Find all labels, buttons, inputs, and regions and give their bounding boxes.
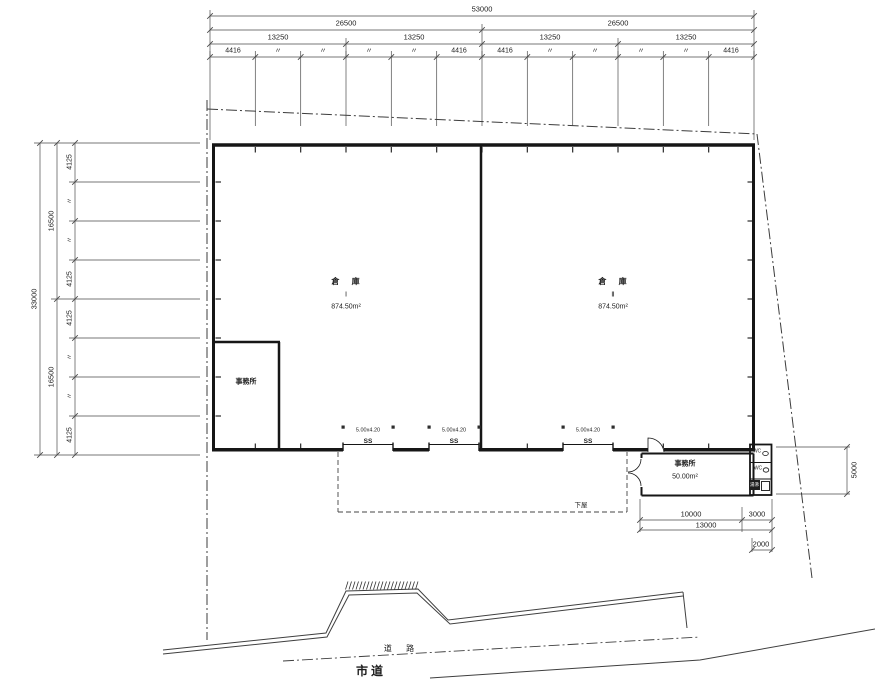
dim-left-cell: 4125 bbox=[67, 310, 74, 326]
floor-plan-sheet: 53000 26500 26500 13250 13250 13250 1325… bbox=[0, 0, 875, 686]
dim-left-cell: 〃 bbox=[67, 237, 74, 244]
dim-total-width: 13000 bbox=[696, 521, 717, 529]
dim-left-cell: 4125 bbox=[67, 271, 74, 287]
shutter-mark: SS bbox=[364, 438, 373, 445]
office-right-label: 事務所 bbox=[675, 461, 696, 468]
office-left-label: 事務所 bbox=[236, 379, 257, 386]
dim-top-total: 53000 bbox=[472, 5, 493, 13]
road-label: 道 路 bbox=[384, 645, 420, 653]
dim-wc-width: 2000 bbox=[753, 540, 770, 548]
building-walls bbox=[212, 144, 772, 496]
dim-top-cell: 〃 bbox=[683, 48, 690, 55]
dim-top-cell: 〃 bbox=[366, 48, 373, 55]
wc-lower-label: WC bbox=[754, 467, 762, 472]
dim-top-quarter: 13250 bbox=[676, 33, 697, 41]
warehouse-right-area: 874.50m² bbox=[598, 304, 628, 311]
road-lines bbox=[163, 589, 875, 678]
dim-top-cell: 〃 bbox=[638, 48, 645, 55]
dim-top-quarter: 13250 bbox=[404, 33, 425, 41]
shutter-mark: SS bbox=[584, 438, 593, 445]
warehouse-left-number: Ⅰ bbox=[345, 292, 347, 299]
warehouse-left-area: 874.50m² bbox=[331, 304, 361, 311]
shutter-mark: SS bbox=[450, 438, 459, 445]
warehouse-right-name: 倉 庫 bbox=[598, 278, 631, 286]
warehouse-left-name: 倉 庫 bbox=[331, 278, 364, 286]
dim-left-half-b: 16500 bbox=[47, 367, 55, 388]
shutter-size: 5.00x4.20 bbox=[576, 428, 600, 434]
dim-top-cell: 〃 bbox=[592, 48, 599, 55]
wc-upper-label: WC bbox=[753, 450, 761, 455]
dim-top-cell: 4416 bbox=[723, 48, 739, 55]
dim-top-cell: 4416 bbox=[497, 48, 513, 55]
dimension-lines bbox=[40, 10, 850, 552]
dim-top-cell: 〃 bbox=[275, 48, 282, 55]
dim-office-width: 10000 bbox=[681, 510, 702, 518]
dimension-ticks bbox=[34, 13, 850, 553]
canopy-label: 下屋 bbox=[575, 503, 588, 510]
dim-top-cell: 〃 bbox=[547, 48, 554, 55]
dim-top-quarter: 13250 bbox=[268, 33, 289, 41]
dim-left-cell: 〃 bbox=[67, 354, 74, 361]
dim-top-quarter: 13250 bbox=[540, 33, 561, 41]
shutter-size: 5.00x4.20 bbox=[356, 428, 380, 434]
dim-top-cell: 4416 bbox=[225, 48, 241, 55]
city-road-label: 市道 bbox=[356, 665, 386, 677]
hot-water-label: 湯沸 bbox=[749, 480, 760, 490]
dim-top-cell: 〃 bbox=[411, 48, 418, 55]
dim-top-half-a: 26500 bbox=[336, 19, 357, 27]
dim-top-cell: 4416 bbox=[451, 48, 467, 55]
dim-left-total: 33000 bbox=[30, 289, 38, 310]
dim-top-cell: 〃 bbox=[320, 48, 327, 55]
dim-annex-width: 3000 bbox=[749, 510, 766, 518]
dim-left-cell: 〃 bbox=[67, 393, 74, 400]
dim-left-cell: 4125 bbox=[67, 154, 74, 170]
office-right-area: 50.00m² bbox=[672, 474, 698, 481]
dim-left-half-a: 16500 bbox=[47, 211, 55, 232]
shutter-size: 5.00x4.20 bbox=[442, 428, 466, 434]
dim-right-depth: 5000 bbox=[850, 462, 858, 479]
hatch-and-marks bbox=[342, 426, 614, 590]
site-boundary bbox=[207, 100, 812, 640]
warehouse-right-number: Ⅱ bbox=[611, 292, 614, 299]
dim-left-cell: 〃 bbox=[67, 198, 74, 205]
dim-top-half-b: 26500 bbox=[608, 19, 629, 27]
dim-left-cell: 4125 bbox=[67, 427, 74, 443]
plan-drawing bbox=[0, 0, 875, 686]
